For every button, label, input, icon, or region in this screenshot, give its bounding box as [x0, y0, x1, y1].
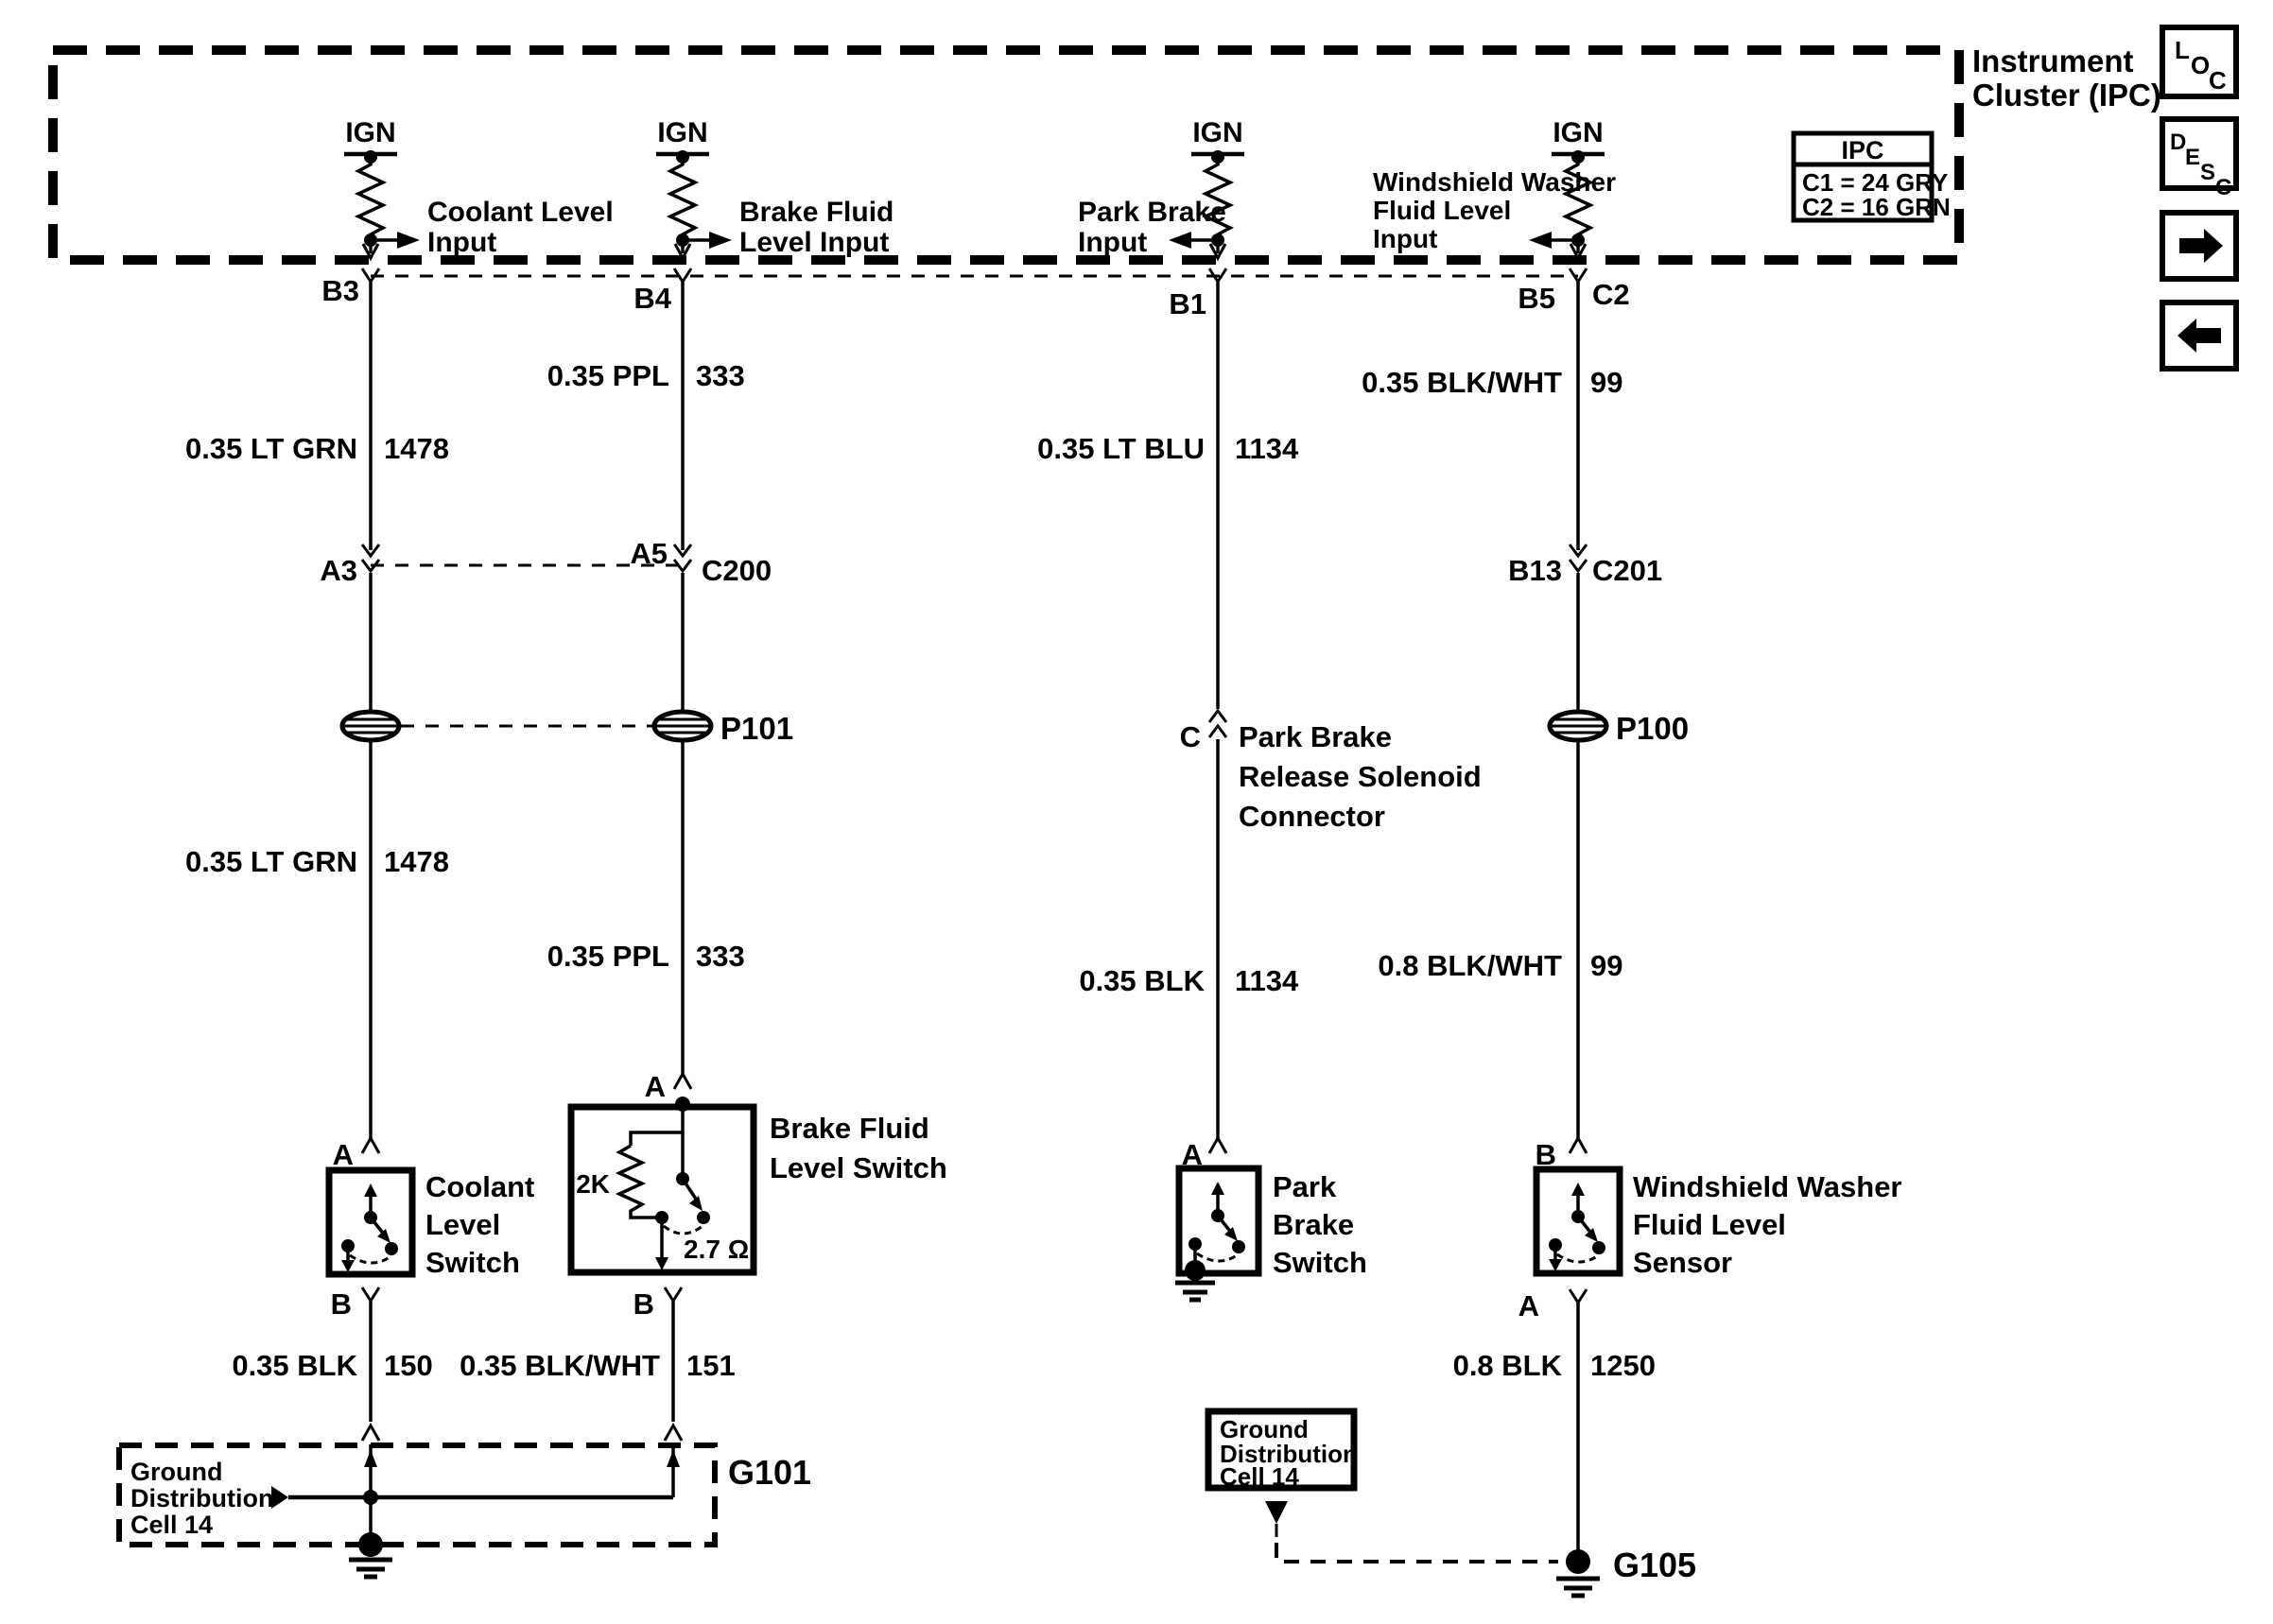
brake-input-label-2: Level Input — [739, 227, 889, 258]
coolant-input-label-2: Input — [427, 227, 496, 258]
pin-b4: B4 — [633, 282, 671, 315]
ground-note-3: Cell 14 — [130, 1511, 213, 1539]
desc-letter-1: D — [2170, 130, 2186, 155]
ign-label: IGN — [657, 117, 707, 148]
legend-row-2: C2 = 16 GRN — [1802, 193, 1951, 221]
desc-letter-3: S — [2200, 160, 2215, 185]
ign-label: IGN — [1192, 117, 1242, 148]
loc-letter-3: C — [2209, 66, 2227, 95]
ground-icon — [1556, 1579, 1600, 1596]
brake-fluid-level-switch: 2K 2.7 Ω — [571, 1097, 754, 1272]
washer-fluid-level-sensor — [1536, 1169, 1620, 1273]
wire-circuit: 99 — [1590, 949, 1622, 982]
arrow-left-icon — [1169, 232, 1191, 249]
pin-b5: B5 — [1518, 282, 1555, 315]
park-brake-switch — [1175, 1168, 1258, 1300]
wire-spec: 0.35 PPL — [547, 359, 669, 392]
circuit-park-brake: 0.35 LT BLU 1134 C Park Brake Release So… — [1037, 268, 1482, 1300]
connector-c200: C200 — [702, 554, 772, 587]
wire-circuit: 150 — [384, 1349, 433, 1382]
solenoid-name-2: Release Solenoid — [1239, 760, 1482, 793]
wire-spec: 0.35 BLK — [1079, 964, 1205, 997]
wire-circuit: 1250 — [1590, 1349, 1656, 1382]
resistor-2k-label: 2K — [576, 1169, 610, 1199]
wire-circuit: 151 — [686, 1349, 736, 1382]
washer-sensor-name-1: Windshield Washer — [1633, 1170, 1902, 1203]
circuit-coolant: 0.35 LT GRN 1478 A3 0.35 LT GRN 1478 A — [185, 268, 534, 1422]
next-button[interactable] — [2162, 213, 2236, 279]
wire-spec: 0.35 BLK/WHT — [460, 1349, 660, 1382]
ipc-input-labels: Coolant Level Input Brake Fluid Level In… — [427, 167, 1616, 258]
loc-letter-2: O — [2191, 51, 2210, 79]
park-switch-name-1: Park — [1273, 1170, 1337, 1203]
park-input-label-1: Park Brake — [1078, 197, 1226, 228]
wire-circuit: 333 — [696, 940, 745, 973]
wiring-diagram: IGN IGN IGN IGN Coolant Level In — [0, 0, 2273, 1624]
coolant-level-switch — [329, 1170, 412, 1274]
arrow-right-icon — [709, 232, 732, 249]
coolant-input-label-1: Coolant Level — [427, 197, 614, 228]
pin-b3: B3 — [321, 274, 359, 307]
wire-circuit: 1134 — [1235, 432, 1299, 465]
wire-spec: 0.35 BLK — [232, 1349, 357, 1382]
connector-c201: C201 — [1592, 554, 1662, 587]
wire-circuit: 1478 — [384, 432, 449, 465]
pin-c2: C2 — [1592, 278, 1630, 311]
arrow-right-icon — [397, 232, 420, 249]
page-title-line2: Cluster (IPC) — [1972, 78, 2161, 112]
brake-switch-name-1: Brake Fluid — [770, 1112, 929, 1145]
ign-feed-brake: IGN — [656, 117, 732, 258]
wire-spec: 0.8 BLK — [1453, 1349, 1563, 1382]
arrow-down-icon — [1265, 1501, 1288, 1524]
pin-a: A — [333, 1138, 354, 1171]
ign-feed-park: IGN — [1169, 117, 1244, 258]
pin-a: A — [645, 1070, 666, 1103]
washer-input-label-1: Windshield Washer — [1373, 167, 1616, 197]
page-title-line1: Instrument — [1972, 43, 2134, 78]
pin-b: B — [331, 1287, 352, 1321]
p100-grommet-icon — [1550, 712, 1606, 740]
desc-button[interactable]: D E S C — [2162, 119, 2236, 200]
washer-input-label-2: Fluid Level — [1373, 196, 1511, 225]
wire-circuit: 1478 — [384, 845, 449, 878]
desc-letter-2: E — [2185, 145, 2200, 170]
prev-button[interactable] — [2162, 302, 2236, 369]
coolant-switch-name-1: Coolant — [425, 1170, 534, 1203]
wire-spec: 0.8 BLK/WHT — [1378, 949, 1562, 982]
wiring-diagram-page: IGN IGN IGN IGN Coolant Level In — [0, 0, 2273, 1624]
wire-spec: 0.35 LT BLU — [1037, 432, 1205, 465]
ign-label: IGN — [1553, 117, 1603, 148]
solenoid-name-1: Park Brake — [1239, 720, 1392, 753]
park-switch-name-2: Brake — [1273, 1208, 1354, 1241]
park-input-label-2: Input — [1078, 227, 1147, 258]
ground-note-2: Distribution — [130, 1484, 273, 1512]
wire-circuit: 99 — [1590, 366, 1622, 399]
wire-spec: 0.35 LT GRN — [185, 845, 357, 878]
solenoid-name-3: Connector — [1239, 800, 1385, 833]
brake-input-label-1: Brake Fluid — [739, 197, 894, 228]
wire-spec: 0.35 PPL — [547, 940, 669, 973]
connector-p100: P100 — [1616, 711, 1689, 746]
wire-circuit: 333 — [696, 359, 745, 392]
ground-icon — [349, 1560, 392, 1577]
g105-ground-block: Ground Distribution Cell 14 G105 — [1208, 1411, 1696, 1596]
nav-buttons: L O C D E S C — [2162, 27, 2236, 369]
coolant-switch-name-3: Switch — [425, 1246, 520, 1279]
washer-input-label-3: Input — [1373, 224, 1437, 253]
pin-b1: B1 — [1169, 287, 1206, 320]
brake-switch-name-2: Level Switch — [770, 1151, 947, 1184]
ign-feed-coolant: IGN — [344, 117, 420, 258]
pin-a: A — [1518, 1289, 1539, 1322]
park-switch-name-3: Switch — [1273, 1246, 1367, 1279]
g105-dashed-link — [1276, 1543, 1558, 1562]
coolant-switch-name-2: Level — [425, 1208, 500, 1241]
connector-g105: G105 — [1613, 1546, 1696, 1584]
p101-grommet-icon — [654, 712, 711, 740]
washer-sensor-name-3: Sensor — [1633, 1246, 1732, 1279]
ipc-pin-labels: B3 B4 B1 B5 C2 — [321, 274, 1629, 320]
pin-b: B — [633, 1287, 654, 1321]
circuit-washer-fluid: 0.35 BLK/WHT 99 B13 C201 P100 0.8 BLK/WH… — [1362, 268, 1901, 1558]
pin-c: C — [1180, 720, 1201, 753]
washer-sensor-name-2: Fluid Level — [1633, 1208, 1786, 1241]
loc-button[interactable]: L O C — [2162, 27, 2236, 96]
ign-label: IGN — [345, 117, 395, 148]
ipc-boundary-box — [53, 50, 1959, 260]
ipc-legend: IPC C1 = 24 GRY C2 = 16 GRN — [1794, 133, 1951, 221]
desc-letter-4: C — [2215, 175, 2231, 200]
ground-icon — [1175, 1283, 1215, 1300]
connector-g101: G101 — [728, 1453, 811, 1492]
wire-spec: 0.35 LT GRN — [185, 432, 357, 465]
pin-a3: A3 — [320, 554, 357, 587]
loc-letter-1: L — [2175, 36, 2190, 64]
contact-resistance-label: 2.7 Ω — [684, 1235, 749, 1264]
legend-title: IPC — [1841, 136, 1883, 164]
ground-note-3: Cell 14 — [1220, 1462, 1299, 1491]
arrow-right-icon — [271, 1486, 288, 1509]
wire-circuit: 1134 — [1235, 964, 1299, 997]
ground-note-1: Ground — [130, 1458, 222, 1486]
connector-p101: P101 — [720, 711, 793, 746]
p101-grommet-icon — [342, 712, 399, 740]
arrow-left-icon — [1529, 232, 1552, 249]
g101-ground-block: G101 Ground Distribution Cell 14 — [119, 1425, 811, 1577]
wire-spec: 0.35 BLK/WHT — [1362, 366, 1562, 399]
pin-b13: B13 — [1508, 554, 1562, 587]
